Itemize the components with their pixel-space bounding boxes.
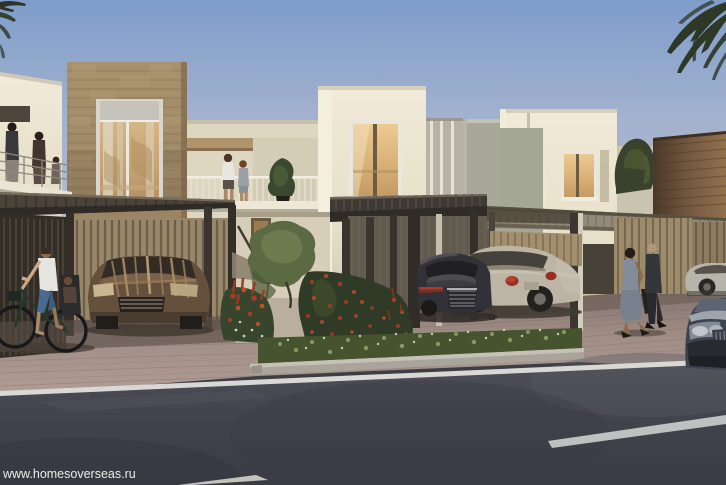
svg-text:www.homesoverseas.ru: www.homesoverseas.ru [2, 467, 136, 481]
